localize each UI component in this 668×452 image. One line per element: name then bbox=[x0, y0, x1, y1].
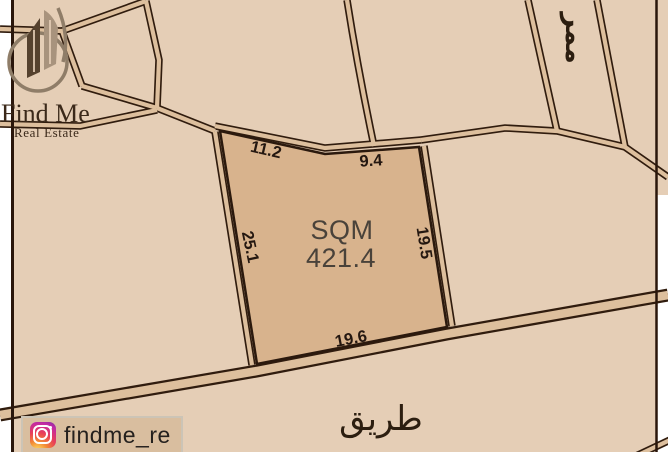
instagram-icon bbox=[30, 422, 56, 448]
passage-label-arabic: ممر bbox=[559, 10, 590, 64]
instagram-icon-lens bbox=[36, 428, 48, 440]
logo-window-slit bbox=[49, 20, 51, 64]
plot-area-value: 421.4 bbox=[306, 243, 376, 273]
instagram-icon-dot bbox=[49, 426, 52, 429]
instagram-badge: findme_re bbox=[21, 416, 183, 452]
map-ground-right-margin bbox=[657, 0, 668, 195]
logo-window-slit bbox=[33, 30, 35, 72]
brand-tagline: Real Estate bbox=[14, 125, 79, 141]
dimension-label-top-right: 9.4 bbox=[359, 151, 384, 171]
listing-map-image: 11.2 9.4 25.1 19.5 19.6 SQM 421.4 طريق م… bbox=[0, 0, 668, 452]
instagram-handle: findme_re bbox=[64, 422, 171, 449]
road-label-arabic: طريق bbox=[339, 399, 423, 439]
map-svg: 11.2 9.4 25.1 19.5 19.6 SQM 421.4 طريق م… bbox=[0, 0, 668, 452]
plot-area-label: SQM bbox=[310, 215, 373, 245]
